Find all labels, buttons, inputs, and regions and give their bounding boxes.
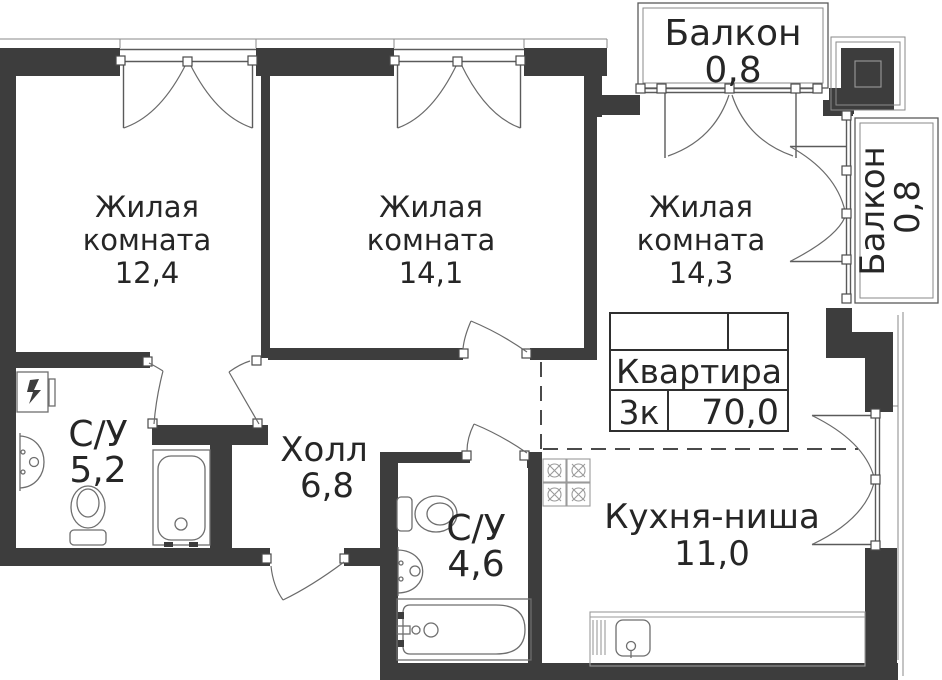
sink-icon <box>398 547 423 596</box>
room-name: Жилая <box>95 190 199 224</box>
wall-bath2 <box>528 452 542 668</box>
room-labels: Жилая комната 12,4 Жилая комната 14,1 Жи… <box>68 13 928 585</box>
card-title: Квартира <box>616 352 782 391</box>
label-living-room-1: Жилая комната 12,4 <box>83 190 212 290</box>
door-room1-and-bath1 <box>143 356 262 428</box>
wall-right <box>865 548 897 665</box>
label-balcony-top: Балкон 0,8 <box>664 13 801 91</box>
kitchen-sink-icon <box>616 620 650 658</box>
wall-hall <box>530 348 597 360</box>
room-name: комната <box>367 223 496 257</box>
bathtub-icon <box>397 599 531 660</box>
wall-step <box>865 332 893 412</box>
wall <box>524 48 607 76</box>
room-area: 0,8 <box>704 50 761 91</box>
room-name: Жилая <box>649 190 753 224</box>
wall-room-divider <box>584 115 597 358</box>
label-living-room-3: Жилая комната 14,3 <box>637 190 766 290</box>
door-hall-to-living3 <box>459 321 531 358</box>
door-entrance <box>262 554 349 600</box>
card-rooms-count: 3к <box>619 393 660 432</box>
room-name: Балкон <box>853 146 893 275</box>
wall <box>0 352 150 368</box>
apartment-info-card: Квартира 3к 70,0 <box>610 313 788 433</box>
room-area: 14,1 <box>399 256 464 290</box>
room-name: Жилая <box>379 190 483 224</box>
wall-bottom <box>0 548 270 566</box>
stove-icon <box>543 459 590 506</box>
door-bath2 <box>462 424 529 460</box>
sink-icon <box>20 433 44 491</box>
label-kitchen-niche: Кухня-ниша 11,0 <box>604 497 820 574</box>
room-name: Кухня-ниша <box>604 497 820 537</box>
wall <box>210 445 232 548</box>
room-name: С/У <box>68 414 127 455</box>
wall-left <box>0 48 16 564</box>
window-room2 <box>390 50 525 129</box>
room-name: Балкон <box>664 13 801 54</box>
label-balcony-right: Балкон 0,8 <box>853 146 928 275</box>
wall-bath2 <box>380 452 398 680</box>
wall-hall <box>268 348 463 360</box>
room-area: 12,4 <box>115 256 180 290</box>
floor-plan-page: Жилая комната 12,4 Жилая комната 14,1 Жи… <box>0 0 942 680</box>
wall <box>152 425 268 445</box>
room-name: Холл <box>280 430 368 470</box>
label-hall: Холл 6,8 <box>280 430 368 506</box>
room-area: 5,2 <box>69 450 126 491</box>
toilet-icon <box>70 486 106 545</box>
label-bath-1: С/У 5,2 <box>68 414 127 491</box>
floor-plan-drawing: Жилая комната 12,4 Жилая комната 14,1 Жи… <box>0 0 942 680</box>
wall-bath2 <box>380 452 470 463</box>
wall-room-divider <box>261 75 270 358</box>
label-bath-2: С/У 4,6 <box>446 508 505 585</box>
window-balcony-right-door <box>790 111 851 303</box>
room-area: 0,8 <box>888 180 928 234</box>
card-total-area: 70,0 <box>701 393 779 433</box>
window-kitchen-french-door <box>812 409 880 550</box>
wall <box>584 95 640 115</box>
room-area: 6,8 <box>300 466 354 506</box>
wall <box>256 48 394 76</box>
electrical-panel-icon <box>17 372 55 412</box>
wall <box>0 48 120 76</box>
room-area: 14,3 <box>669 256 734 290</box>
room-name: С/У <box>446 508 505 549</box>
room-area: 11,0 <box>674 534 750 574</box>
room-area: 4,6 <box>447 544 504 585</box>
room-name: комната <box>83 223 212 257</box>
bathtub-icon <box>153 450 210 547</box>
label-living-room-2: Жилая комната 14,1 <box>367 190 496 290</box>
window-room1 <box>116 50 257 129</box>
room-name: комната <box>637 223 766 257</box>
